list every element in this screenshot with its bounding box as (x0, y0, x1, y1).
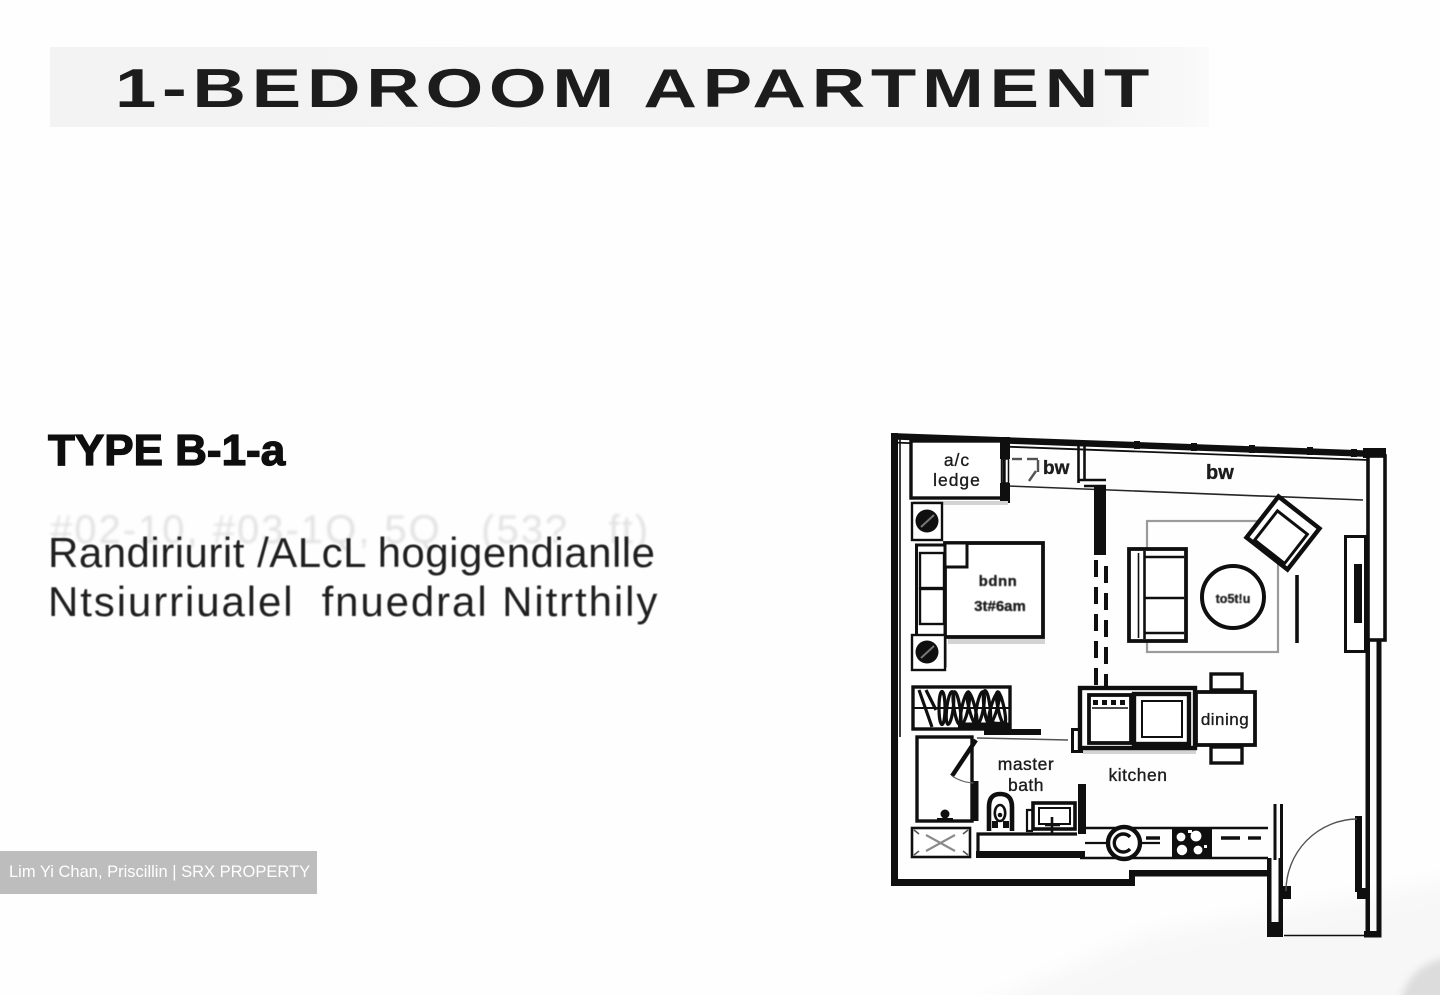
svg-text:bath: bath (1008, 775, 1044, 795)
svg-text:a/c: a/c (944, 450, 970, 470)
svg-text:3t#6am: 3t#6am (974, 598, 1026, 615)
svg-text:master: master (998, 754, 1054, 774)
svg-text:to5t!u: to5t!u (1216, 592, 1251, 606)
svg-text:ledge: ledge (933, 470, 981, 490)
svg-text:bw: bw (1206, 462, 1234, 484)
svg-text:kitchen: kitchen (1109, 765, 1168, 785)
svg-text:bdnn: bdnn (979, 573, 1018, 590)
svg-text:bw: bw (1043, 458, 1070, 479)
svg-text:dining: dining (1201, 710, 1249, 729)
